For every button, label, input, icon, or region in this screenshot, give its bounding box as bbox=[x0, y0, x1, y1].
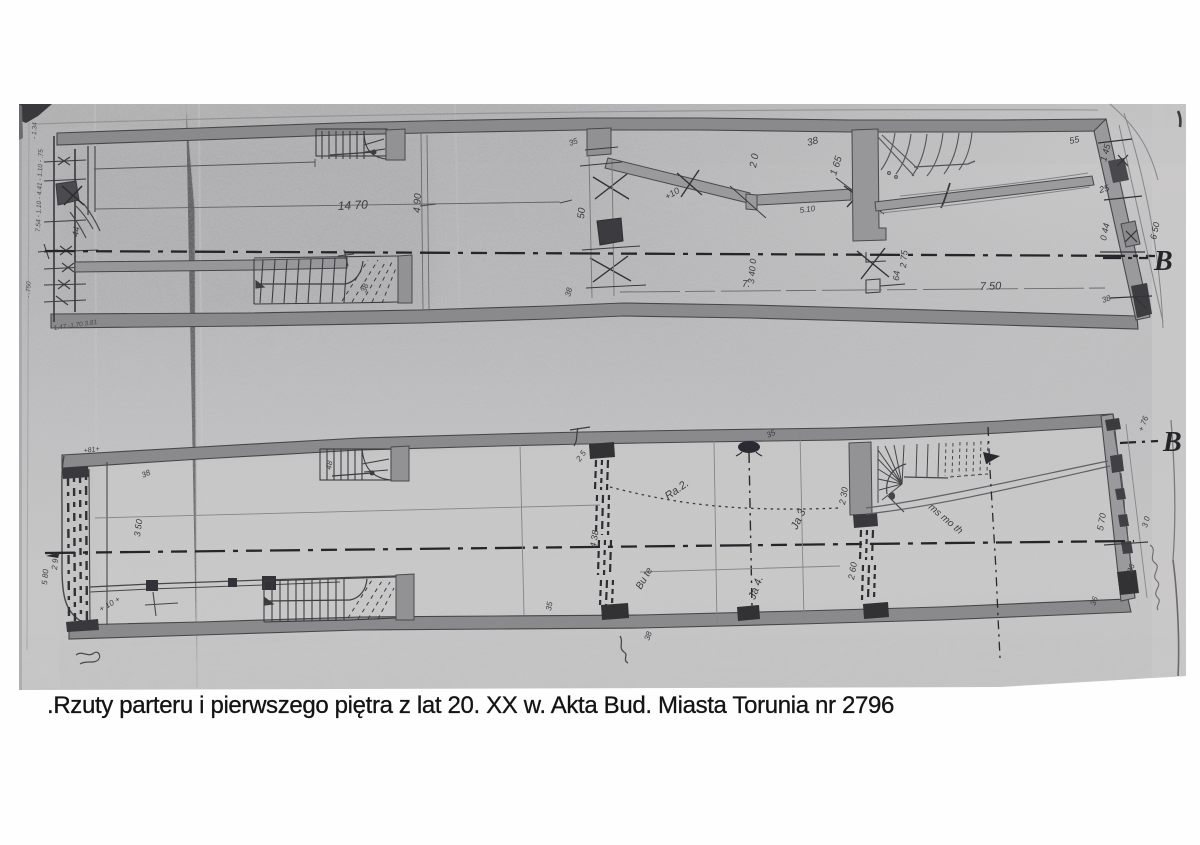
svg-text:14 70: 14 70 bbox=[337, 197, 368, 213]
svg-text:- 1.34: - 1.34 bbox=[31, 122, 39, 139]
svg-text:2 75: 2 75 bbox=[898, 249, 910, 269]
svg-text:50: 50 bbox=[576, 207, 588, 219]
svg-text:2 9 1: 2 9 1 bbox=[50, 552, 61, 572]
svg-text:B: B bbox=[1162, 427, 1182, 458]
svg-text:44: 44 bbox=[70, 226, 82, 238]
svg-text:4 90: 4 90 bbox=[412, 193, 424, 213]
svg-text:- .750: - .750 bbox=[25, 281, 33, 298]
svg-text:5 80: 5 80 bbox=[40, 568, 50, 585]
svg-text:B: B bbox=[1153, 246, 1173, 277]
svg-text:7.50: 7.50 bbox=[980, 280, 1003, 293]
svg-text:64: 64 bbox=[891, 270, 902, 281]
svg-text:7.: 7. bbox=[742, 279, 750, 290]
